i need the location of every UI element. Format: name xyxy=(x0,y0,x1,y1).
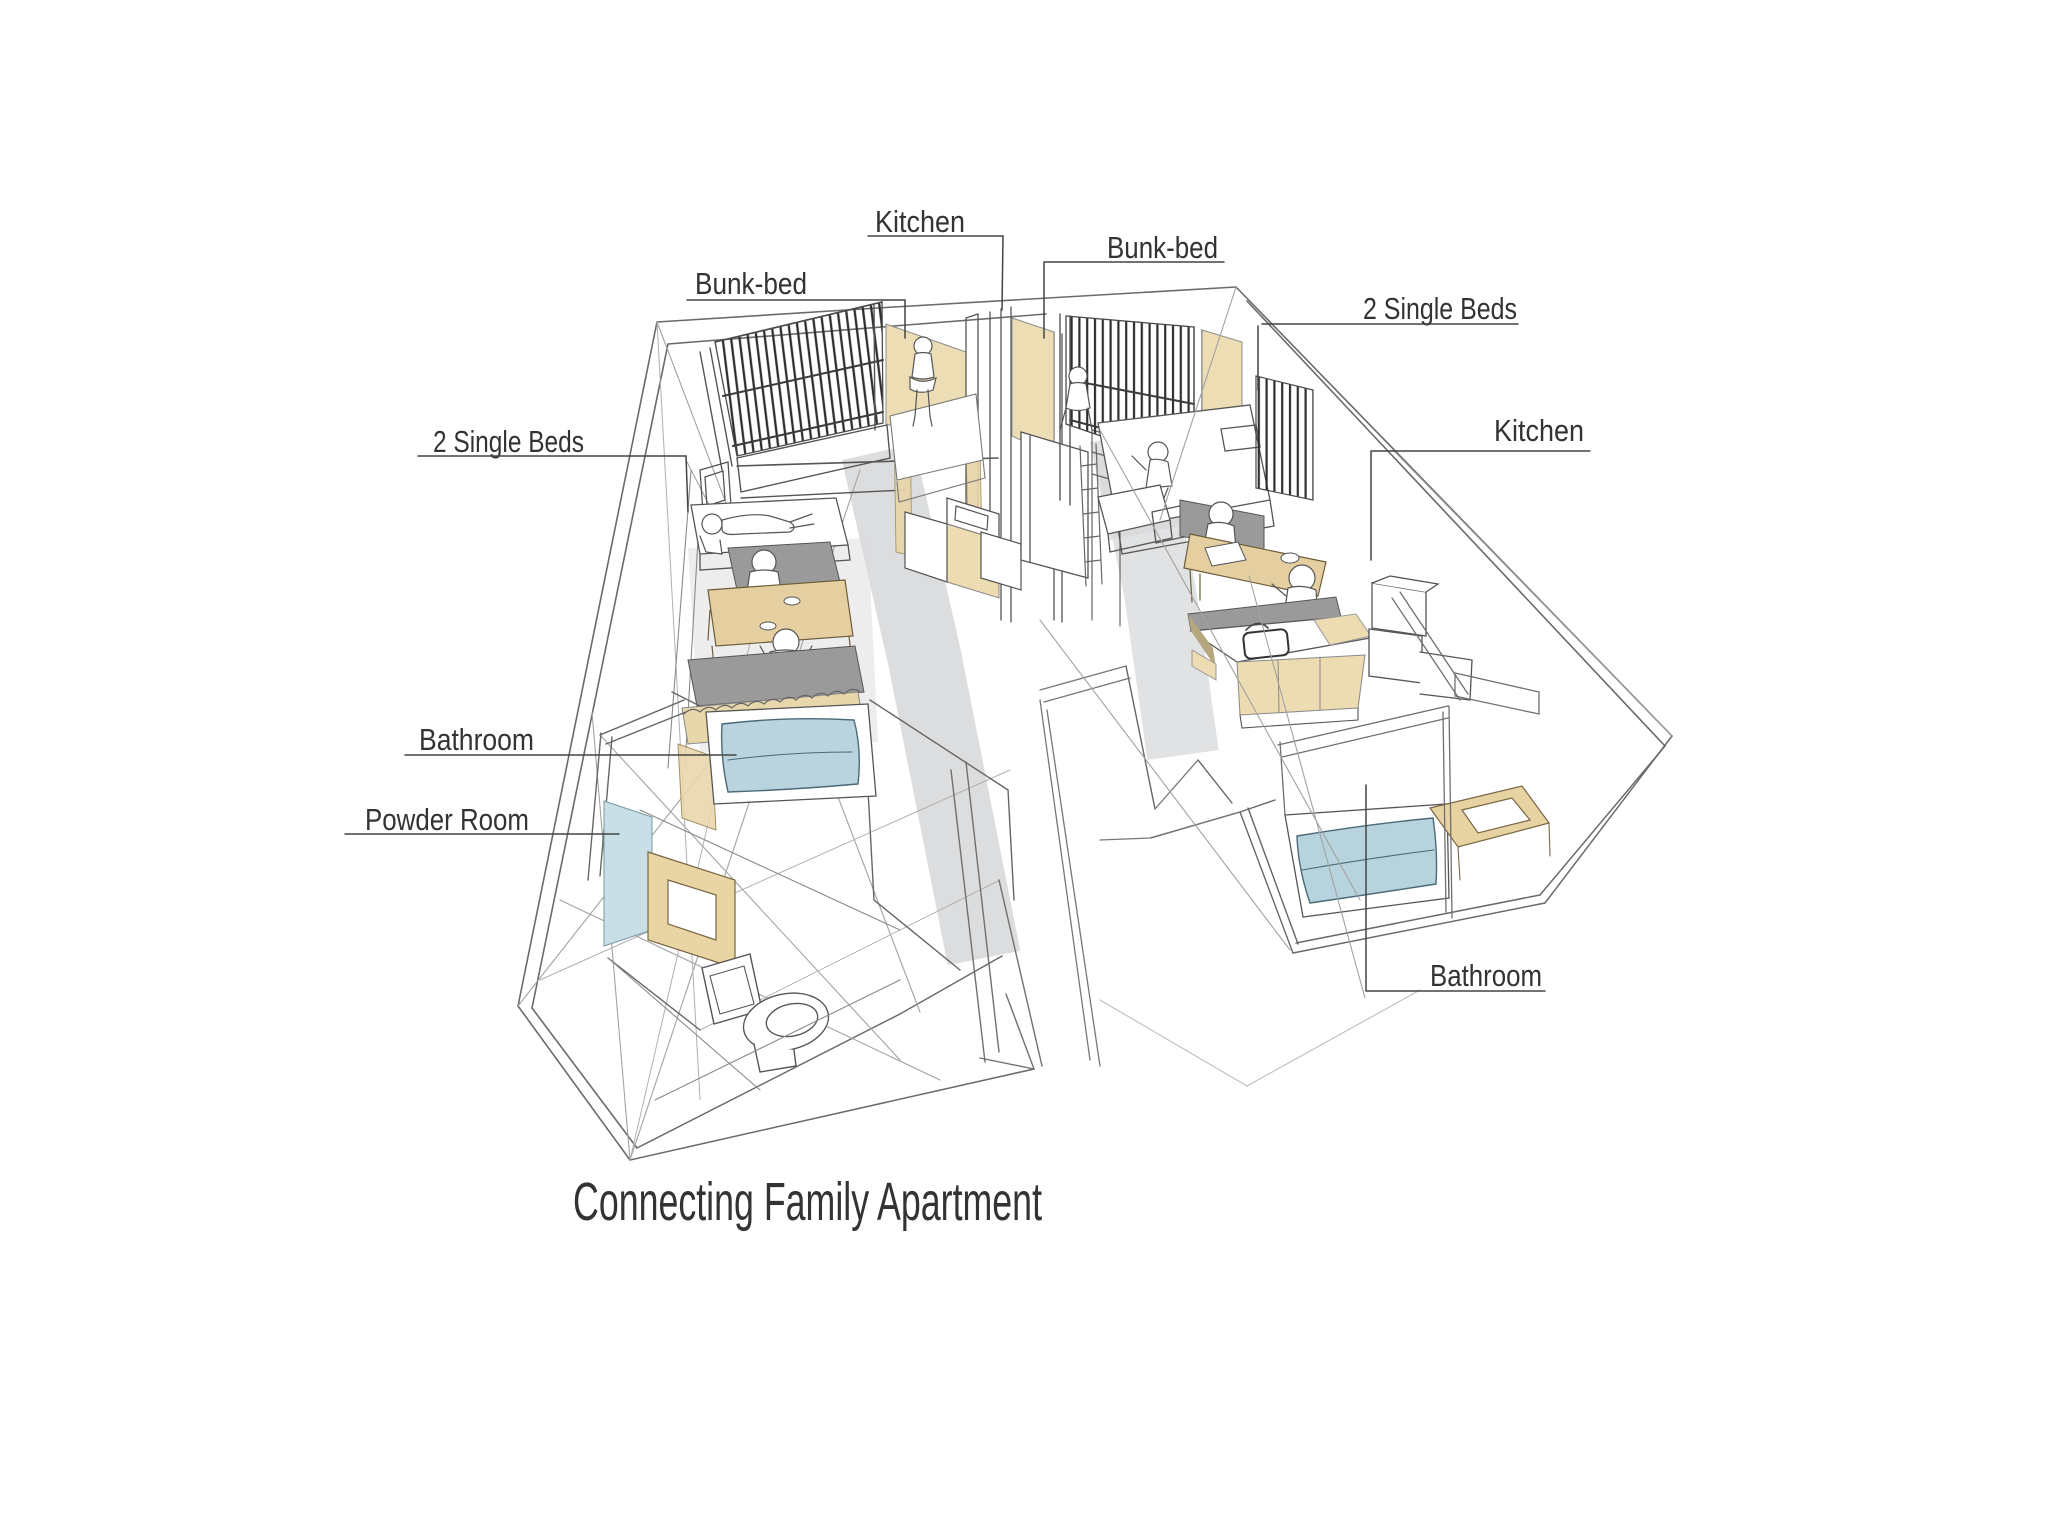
svg-text:2 Single Beds: 2 Single Beds xyxy=(433,424,584,459)
svg-text:Connecting Family Apartment: Connecting Family Apartment xyxy=(573,1172,1042,1232)
svg-text:Bathroom: Bathroom xyxy=(1430,958,1542,993)
svg-text:Bathroom: Bathroom xyxy=(419,722,534,757)
svg-text:2 Single Beds: 2 Single Beds xyxy=(1363,291,1517,326)
svg-text:Kitchen: Kitchen xyxy=(1494,413,1584,448)
svg-text:Bunk-bed: Bunk-bed xyxy=(695,266,807,301)
svg-text:Kitchen: Kitchen xyxy=(875,204,965,239)
svg-text:Bunk-bed: Bunk-bed xyxy=(1107,230,1218,265)
svg-text:Powder Room: Powder Room xyxy=(365,802,529,837)
